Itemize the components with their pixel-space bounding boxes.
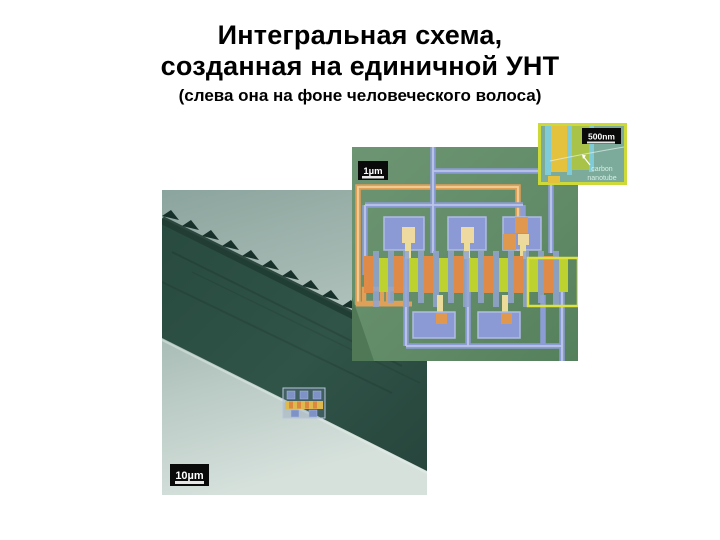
slide-title: Интегральная схема, созданная на единичн… bbox=[0, 20, 720, 107]
inset-scale-label: 500nm bbox=[588, 132, 615, 142]
nanotube-inset-image: 500nm carbon nanotube bbox=[538, 123, 627, 185]
inset-caption-line-1: carbon bbox=[591, 166, 613, 173]
inset-caption-line-2: nanotube bbox=[587, 175, 616, 182]
hair-scale-label: 10µm bbox=[175, 470, 204, 482]
inset-scale-bar: 500nm bbox=[582, 128, 621, 144]
presentation-slide: Интегральная схема, созданная на единичн… bbox=[0, 0, 720, 540]
tiny-circuit-on-hair bbox=[283, 388, 325, 418]
title-line-1: Интегральная схема, bbox=[0, 20, 720, 51]
title-line-2: созданная на единичной УНТ bbox=[0, 51, 720, 82]
hair-scale-bar: 10µm bbox=[170, 464, 209, 486]
circuit-scale-label: 1µm bbox=[363, 166, 382, 177]
slide-subtitle: (слева она на фоне человеческого волоса) bbox=[0, 85, 720, 107]
circuit-scale-bar: 1µm bbox=[358, 161, 388, 180]
